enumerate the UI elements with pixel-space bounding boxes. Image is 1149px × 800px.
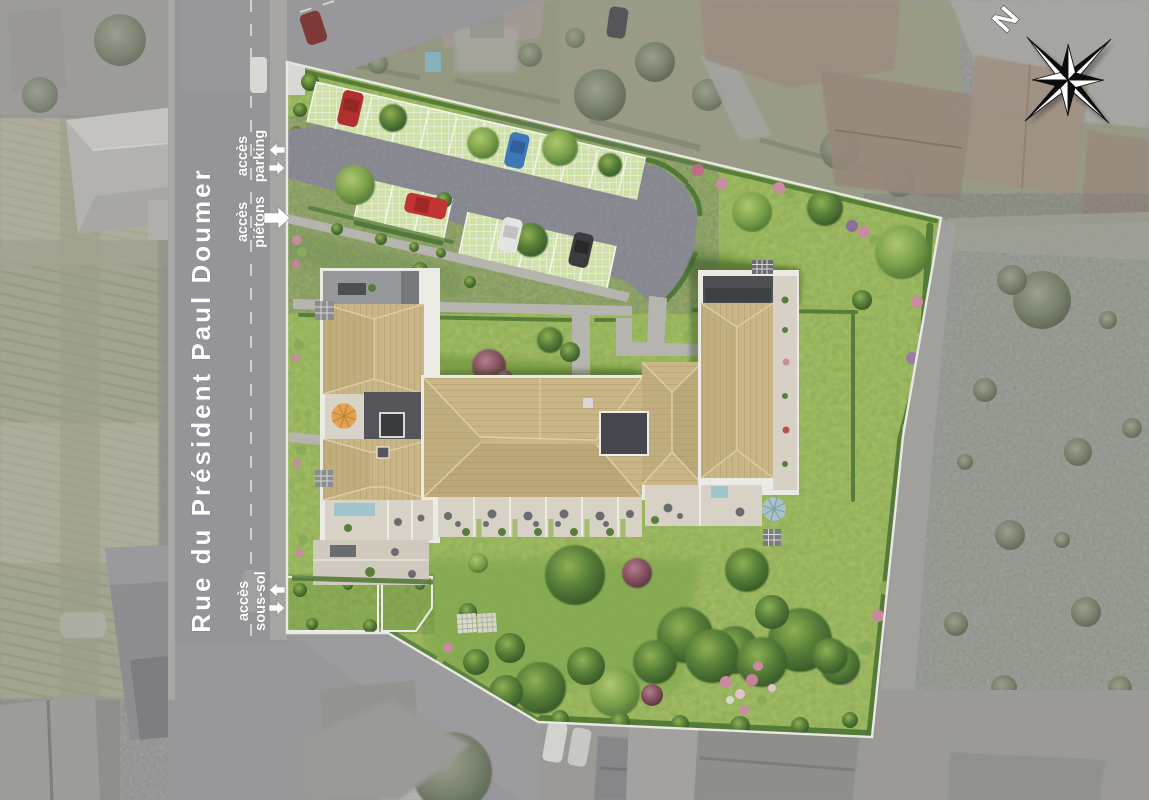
svg-text:accès: accès — [236, 581, 252, 621]
svg-text:accès: accès — [235, 202, 251, 242]
svg-text:parking: parking — [252, 130, 268, 182]
svg-text:sous-sol: sous-sol — [253, 571, 269, 631]
svg-text:accès: accès — [235, 136, 251, 176]
svg-text:Rue du Président Paul Doumer: Rue du Président Paul Doumer — [186, 167, 216, 632]
